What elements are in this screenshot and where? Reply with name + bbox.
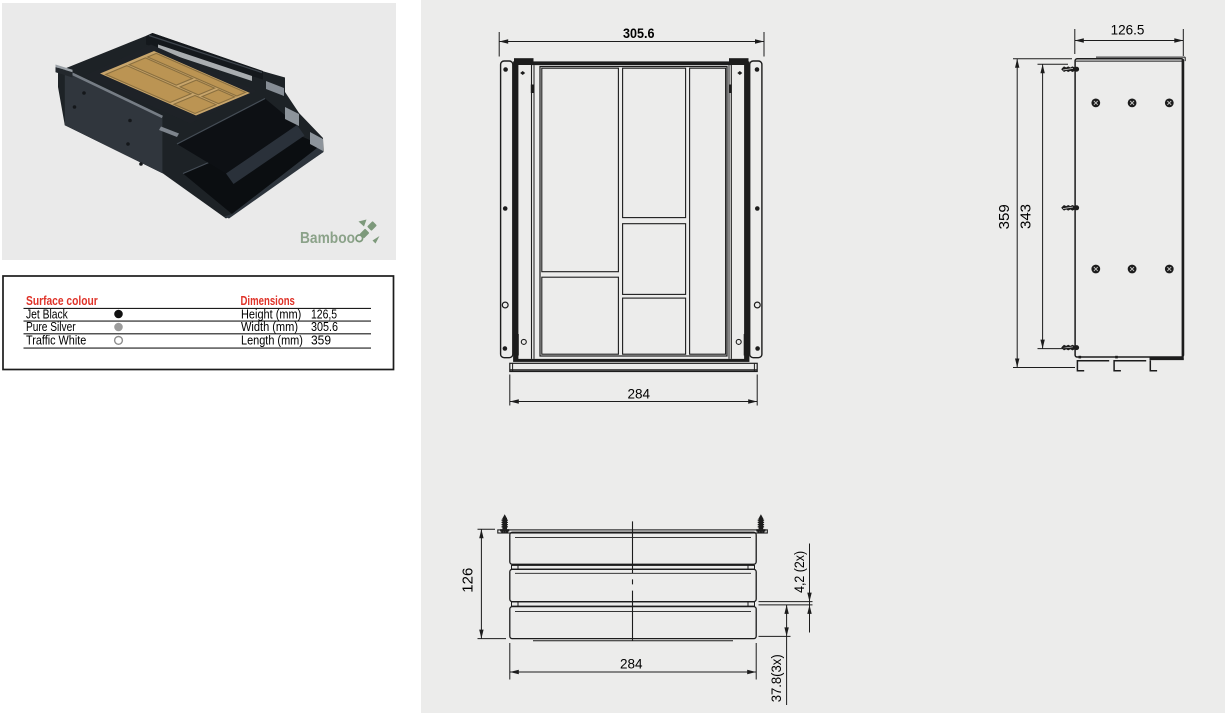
svg-text:Bamboo: Bamboo bbox=[300, 230, 355, 247]
svg-text:126.5: 126.5 bbox=[1111, 23, 1145, 38]
svg-text:343: 343 bbox=[1017, 204, 1034, 229]
svg-text:305.6: 305.6 bbox=[623, 25, 655, 41]
svg-text:359: 359 bbox=[311, 332, 331, 347]
svg-text:4,2 (2x): 4,2 (2x) bbox=[792, 551, 807, 593]
svg-text:359: 359 bbox=[996, 204, 1013, 229]
svg-text:37.8(3x): 37.8(3x) bbox=[769, 654, 784, 702]
svg-text:126: 126 bbox=[460, 568, 477, 593]
svg-text:Traffic White: Traffic White bbox=[26, 332, 86, 347]
svg-text:Length (mm): Length (mm) bbox=[241, 332, 303, 347]
svg-text:284: 284 bbox=[620, 657, 643, 672]
svg-text:284: 284 bbox=[628, 387, 651, 402]
